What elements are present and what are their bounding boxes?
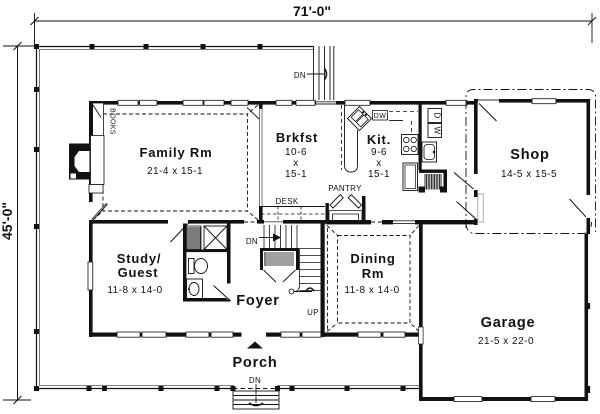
svg-text:15-1: 15-1	[368, 169, 390, 180]
svg-text:Kit.: Kit.	[367, 132, 391, 147]
svg-text:x: x	[293, 158, 299, 169]
svg-text:11-8 x 14-0: 11-8 x 14-0	[107, 285, 162, 296]
svg-text:DESK: DESK	[276, 197, 299, 206]
svg-text:14-5 x 15-5: 14-5 x 15-5	[501, 169, 557, 180]
svg-text:21-5 x 22-0: 21-5 x 22-0	[478, 336, 534, 347]
svg-text:Shop: Shop	[510, 147, 549, 163]
svg-text:9-6: 9-6	[371, 147, 387, 158]
svg-text:PANTRY: PANTRY	[328, 184, 362, 193]
svg-text:11-8 x 14-0: 11-8 x 14-0	[344, 285, 399, 296]
svg-text:15-1: 15-1	[285, 169, 307, 180]
svg-text:D: D	[433, 112, 442, 118]
svg-text:DW: DW	[374, 113, 386, 120]
svg-text:Garage: Garage	[481, 315, 536, 331]
svg-text:Family Rm: Family Rm	[140, 145, 213, 160]
svg-text:DN: DN	[249, 376, 261, 385]
svg-text:Porch: Porch	[232, 355, 277, 371]
svg-text:Brkfst: Brkfst	[276, 130, 318, 145]
svg-text:DN: DN	[294, 71, 306, 80]
svg-text:Foyer: Foyer	[236, 293, 280, 309]
svg-text:Dining: Dining	[350, 251, 395, 266]
svg-text:10-6: 10-6	[285, 147, 307, 158]
svg-text:Guest: Guest	[118, 265, 159, 280]
svg-text:x: x	[376, 158, 382, 169]
svg-text:BOOKS: BOOKS	[109, 108, 116, 135]
svg-text:W: W	[433, 127, 442, 135]
svg-text:DN: DN	[246, 237, 258, 246]
svg-text:21-4 x 15-1: 21-4 x 15-1	[147, 166, 203, 177]
svg-text:45'-0": 45'-0"	[0, 202, 15, 240]
svg-text:Rm: Rm	[362, 266, 385, 281]
svg-text:UP: UP	[307, 308, 319, 317]
svg-text:71'-0": 71'-0"	[293, 3, 331, 19]
svg-text:Study/: Study/	[117, 251, 162, 266]
